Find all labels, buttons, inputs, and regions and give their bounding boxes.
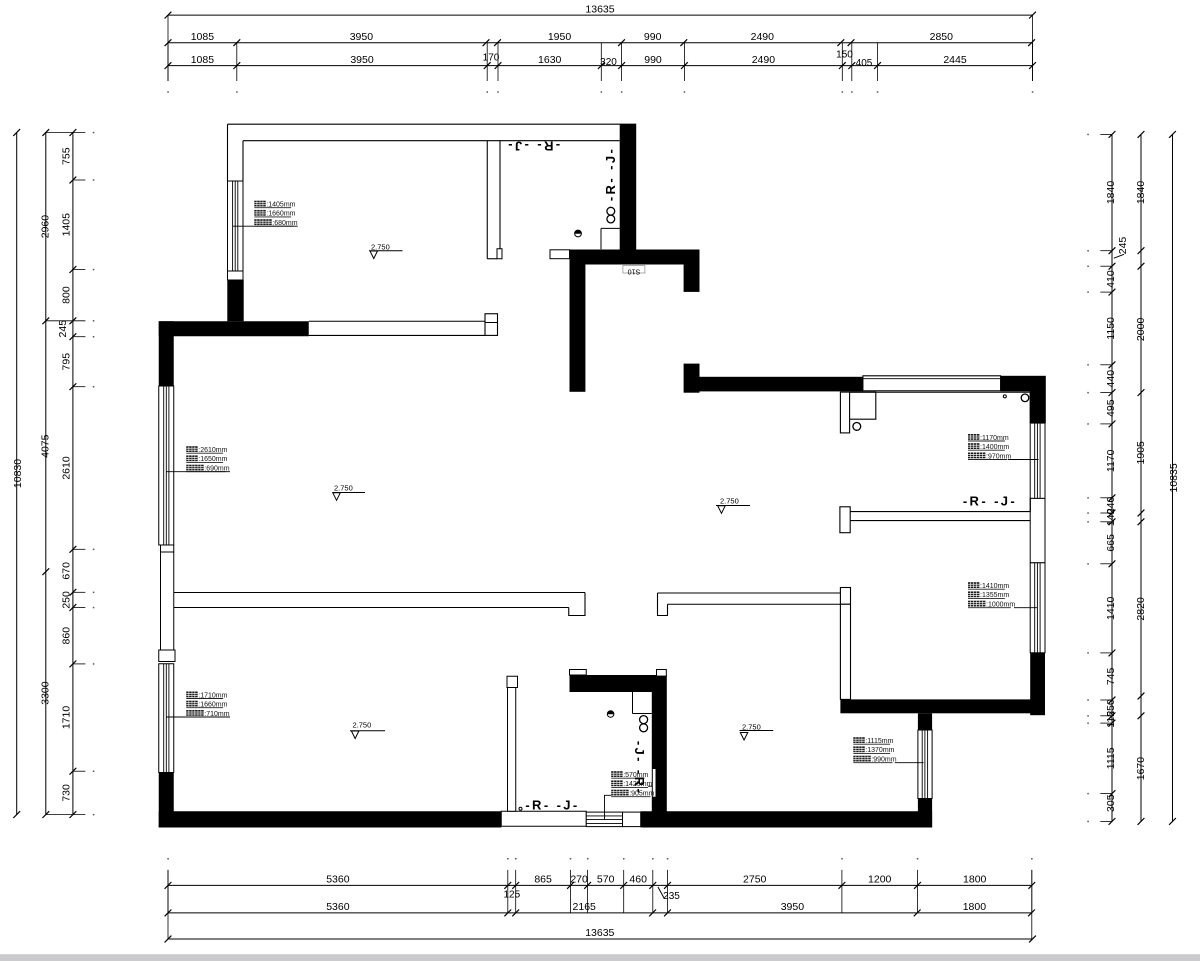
svg-text:1905: 1905 bbox=[1135, 441, 1147, 465]
svg-text:755: 755 bbox=[61, 147, 73, 165]
svg-text:2.750: 2.750 bbox=[353, 721, 372, 730]
svg-text:320: 320 bbox=[600, 57, 617, 68]
svg-text:2960: 2960 bbox=[39, 215, 51, 239]
svg-text:405: 405 bbox=[856, 58, 873, 69]
svg-text:245: 245 bbox=[1117, 237, 1129, 255]
svg-text:13635: 13635 bbox=[585, 3, 614, 15]
svg-text:-R- -J-: -R- -J- bbox=[603, 147, 618, 201]
svg-text:170: 170 bbox=[483, 53, 500, 64]
svg-text:13635: 13635 bbox=[585, 927, 614, 939]
svg-text:1410: 1410 bbox=[1105, 596, 1117, 620]
svg-text:125: 125 bbox=[503, 890, 520, 901]
svg-text:1200: 1200 bbox=[868, 874, 892, 886]
svg-text:250: 250 bbox=[61, 591, 73, 609]
svg-text:1670: 1670 bbox=[1135, 757, 1147, 781]
svg-text:150: 150 bbox=[836, 50, 853, 61]
svg-text:1630: 1630 bbox=[538, 54, 562, 66]
svg-text:800: 800 bbox=[61, 286, 73, 304]
svg-text:1800: 1800 bbox=[963, 874, 987, 886]
svg-text:245: 245 bbox=[57, 320, 69, 338]
svg-text:140: 140 bbox=[1105, 508, 1117, 526]
svg-text:2165: 2165 bbox=[573, 901, 597, 913]
svg-text:1150: 1150 bbox=[1105, 317, 1117, 340]
svg-text:3300: 3300 bbox=[39, 681, 51, 705]
svg-text:5360: 5360 bbox=[326, 874, 350, 886]
svg-text:495: 495 bbox=[1105, 399, 1117, 417]
svg-text:2750: 2750 bbox=[743, 874, 767, 886]
svg-text:235: 235 bbox=[663, 891, 680, 902]
svg-text:1170: 1170 bbox=[1105, 449, 1117, 472]
svg-text:1840: 1840 bbox=[1105, 181, 1117, 205]
svg-text:990: 990 bbox=[644, 54, 662, 66]
svg-text:2.750: 2.750 bbox=[720, 497, 739, 506]
svg-text:10830: 10830 bbox=[12, 459, 24, 488]
svg-text:1405: 1405 bbox=[61, 213, 73, 237]
svg-text:2820: 2820 bbox=[1135, 597, 1147, 621]
svg-text:730: 730 bbox=[61, 784, 73, 802]
svg-text:10835: 10835 bbox=[1168, 463, 1180, 492]
svg-text:-R- -J-: -R- -J- bbox=[525, 798, 579, 813]
svg-text:-R- -J-: -R- -J- bbox=[506, 139, 560, 154]
svg-text:1840: 1840 bbox=[1135, 181, 1147, 205]
svg-text:2610: 2610 bbox=[61, 456, 73, 480]
svg-text:745: 745 bbox=[1105, 667, 1117, 685]
svg-text:2.750: 2.750 bbox=[742, 722, 761, 731]
svg-text:1800: 1800 bbox=[963, 901, 987, 913]
svg-text:4075: 4075 bbox=[39, 434, 51, 458]
svg-text:2850: 2850 bbox=[930, 31, 954, 43]
svg-text:2000: 2000 bbox=[1135, 318, 1147, 342]
svg-text:1115: 1115 bbox=[1105, 747, 1117, 769]
svg-text:3950: 3950 bbox=[350, 31, 374, 43]
svg-text:795: 795 bbox=[61, 353, 73, 371]
svg-text:865: 865 bbox=[534, 874, 552, 886]
svg-text:665: 665 bbox=[1105, 534, 1117, 552]
svg-text:S10: S10 bbox=[628, 268, 641, 277]
svg-text:5360: 5360 bbox=[326, 901, 350, 913]
svg-text:410: 410 bbox=[1105, 270, 1117, 288]
svg-text:3950: 3950 bbox=[781, 901, 805, 913]
svg-text:670: 670 bbox=[61, 562, 73, 580]
svg-text:1950: 1950 bbox=[548, 31, 572, 43]
svg-text:860: 860 bbox=[61, 627, 73, 645]
svg-text:2445: 2445 bbox=[943, 54, 967, 66]
svg-text:460: 460 bbox=[629, 874, 647, 886]
svg-text:3950: 3950 bbox=[350, 54, 374, 66]
svg-text:2490: 2490 bbox=[752, 54, 776, 66]
svg-text:1710: 1710 bbox=[61, 706, 73, 730]
svg-text:-J- -R-: -J- -R- bbox=[632, 741, 647, 795]
svg-text:305: 305 bbox=[1105, 794, 1117, 812]
svg-text:990: 990 bbox=[644, 31, 662, 43]
svg-text:440: 440 bbox=[1105, 370, 1117, 388]
svg-text:570: 570 bbox=[597, 874, 615, 886]
svg-text:2490: 2490 bbox=[751, 31, 775, 43]
svg-text:2.750: 2.750 bbox=[334, 483, 353, 492]
svg-text:-R- -J-: -R- -J- bbox=[963, 494, 1017, 509]
svg-text:2.750: 2.750 bbox=[371, 242, 390, 251]
svg-text:1085: 1085 bbox=[191, 31, 215, 43]
svg-text:115: 115 bbox=[1105, 711, 1117, 728]
svg-text:1085: 1085 bbox=[191, 54, 215, 66]
svg-text:270: 270 bbox=[570, 874, 588, 886]
